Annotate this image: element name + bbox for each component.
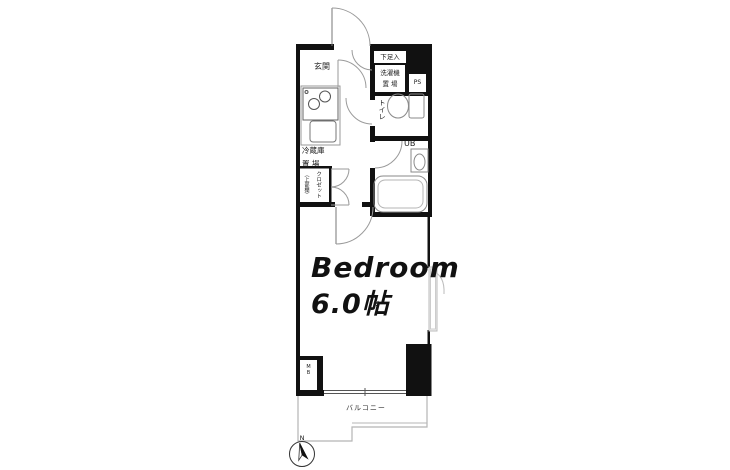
fridge-label: 冷蔵庫 置 場 bbox=[302, 144, 325, 170]
balcony-sliding-window bbox=[324, 388, 406, 396]
washer-label-line2: 置 場 bbox=[375, 79, 405, 90]
toilet-bowl bbox=[388, 94, 409, 118]
fridge-label-line1: 冷蔵庫 bbox=[302, 144, 325, 157]
toilet-door-arc bbox=[346, 98, 372, 124]
floor-plan-canvas: 玄関 下足入 洗濯機 置 場 PS トイレ UB 冷蔵庫 置 場 クロゼット （… bbox=[0, 0, 730, 470]
kitchen bbox=[301, 86, 340, 145]
closet-door-arc-top bbox=[331, 169, 349, 187]
right-wall-upper bbox=[428, 96, 432, 216]
hall-divider-seg1 bbox=[370, 96, 375, 100]
stove-burner-1 bbox=[320, 91, 331, 102]
left-wall bbox=[296, 44, 300, 396]
right-black-block bbox=[406, 344, 432, 396]
fridge-label-line2: 置 場 bbox=[302, 157, 325, 170]
compass bbox=[290, 442, 315, 467]
closet-label: クロゼット bbox=[314, 171, 321, 205]
bath-vanity bbox=[411, 149, 428, 172]
bathtub-outer bbox=[374, 176, 427, 212]
balcony-label: バルコニー bbox=[346, 404, 386, 413]
bath-sink bbox=[414, 154, 425, 170]
bedroom-top-wall-right bbox=[362, 202, 375, 207]
toilet-ub-divider-wall bbox=[372, 136, 432, 141]
ub-bottom-wall bbox=[372, 212, 432, 217]
meter-box-label: MB bbox=[305, 364, 312, 390]
toilet-label: トイレ bbox=[377, 99, 386, 131]
kitchen-sink bbox=[310, 121, 336, 142]
entrance-door-arc bbox=[332, 8, 370, 46]
walls bbox=[296, 44, 432, 396]
kitchen-counter bbox=[301, 86, 340, 145]
bathtub-inner bbox=[378, 180, 423, 208]
shoe-box-door-arc bbox=[352, 50, 372, 70]
floor-plan-drawing bbox=[0, 0, 730, 470]
toilet-tank bbox=[409, 94, 424, 118]
pipe-space-label: PS bbox=[409, 79, 426, 87]
unit-bath-label: UB bbox=[404, 139, 415, 149]
bedroom-door-arc bbox=[336, 207, 373, 244]
balcony-edge bbox=[298, 396, 427, 441]
stove-burner-2 bbox=[309, 99, 320, 110]
north-label: N bbox=[298, 434, 306, 442]
mb-box-right-wall bbox=[317, 356, 323, 392]
compass-needle bbox=[295, 442, 307, 460]
closet-right-wall bbox=[329, 166, 332, 205]
hall-door-arc bbox=[338, 60, 366, 88]
entrance-label: 玄関 bbox=[314, 62, 330, 72]
top-wall-left bbox=[296, 44, 334, 50]
door-swings bbox=[331, 8, 402, 244]
bedroom-name-label: Bedroom bbox=[311, 250, 460, 286]
shoe-box-label: 下足入 bbox=[374, 53, 406, 61]
stove-pilot bbox=[305, 91, 308, 94]
bath-door-arc bbox=[375, 141, 402, 168]
washer-label: 洗濯機 置 場 bbox=[375, 68, 405, 90]
balcony-outline bbox=[298, 396, 427, 441]
bedroom-note-mark: ※ bbox=[373, 299, 380, 309]
washer-label-line1: 洗濯機 bbox=[375, 68, 405, 79]
bedroom-right-wall-b bbox=[428, 330, 431, 344]
closet-note-label: （上部棚） bbox=[303, 172, 310, 204]
bottom-wall-left-segment bbox=[296, 390, 324, 396]
